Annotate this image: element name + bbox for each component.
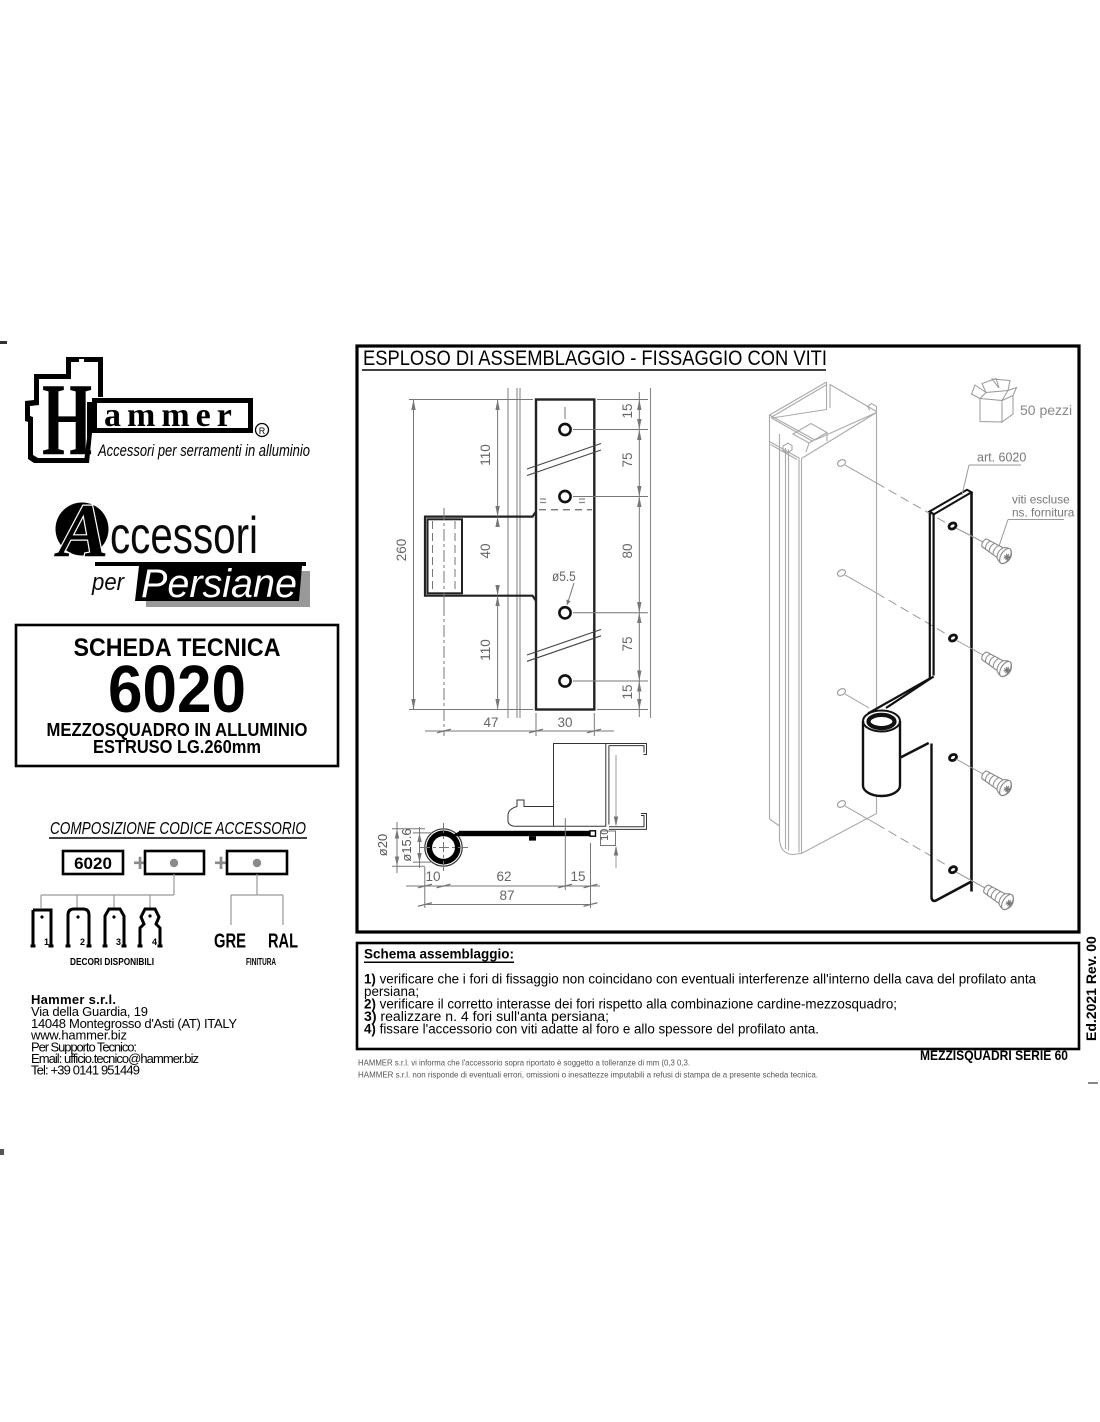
svg-text:ns. fornitura: ns. fornitura xyxy=(1012,506,1075,520)
svg-text:3: 3 xyxy=(116,937,121,947)
svg-text:40: 40 xyxy=(478,543,493,558)
svg-text:ESTRUSO LG.260mm: ESTRUSO LG.260mm xyxy=(93,737,261,757)
svg-text:R: R xyxy=(259,426,266,436)
svg-text:Ed.2021 Rev. 00: Ed.2021 Rev. 00 xyxy=(1083,936,1099,1041)
svg-text:87: 87 xyxy=(499,888,514,903)
svg-text:6020: 6020 xyxy=(74,854,112,873)
svg-text:Tel: +39 0141 951449: Tel: +39 0141 951449 xyxy=(31,1063,140,1078)
svg-text:15: 15 xyxy=(570,869,585,884)
svg-text:ø20: ø20 xyxy=(375,834,390,856)
svg-text:75: 75 xyxy=(620,636,635,651)
svg-text:50 pezzi: 50 pezzi xyxy=(1020,402,1072,418)
svg-text:15: 15 xyxy=(620,403,635,418)
svg-text:FINITURA: FINITURA xyxy=(246,957,276,968)
svg-text:RAL: RAL xyxy=(268,931,298,953)
svg-text:ccessori: ccessori xyxy=(110,507,258,565)
svg-text:GRE: GRE xyxy=(214,931,246,953)
svg-text:Accessori per serramenti in al: Accessori per serramenti in alluminio xyxy=(97,442,310,460)
svg-text:62: 62 xyxy=(496,869,511,884)
svg-text:ø15.6: ø15.6 xyxy=(399,828,414,861)
svg-text:10: 10 xyxy=(425,869,440,884)
svg-text:2: 2 xyxy=(80,937,85,947)
svg-text:15: 15 xyxy=(620,684,635,699)
svg-text:COMPOSIZIONE CODICE ACCESSORIO: COMPOSIZIONE CODICE ACCESSORIO xyxy=(50,818,306,838)
svg-text:HAMMER s.r.l. non risponde di: HAMMER s.r.l. non risponde di eventuali … xyxy=(358,1070,818,1080)
svg-text:A: A xyxy=(54,489,109,573)
svg-text:Schema assemblaggio:: Schema assemblaggio: xyxy=(364,947,514,962)
svg-text:ESPLOSO DI ASSEMBLAGGIO - FISS: ESPLOSO DI ASSEMBLAGGIO - FISSAGGIO CON … xyxy=(363,347,827,370)
svg-text:10: 10 xyxy=(599,829,611,841)
svg-text:DECORI DISPONIBILI: DECORI DISPONIBILI xyxy=(70,957,154,968)
svg-text:MEZZISQUADRI SERIE 60: MEZZISQUADRI SERIE 60 xyxy=(920,1047,1068,1063)
svg-text:47: 47 xyxy=(483,715,498,730)
svg-text:HAMMER s.r.l. vi informa che l: HAMMER s.r.l. vi informa che l'accessori… xyxy=(358,1058,690,1068)
svg-text:Persiane: Persiane xyxy=(141,562,297,606)
svg-text:ø5.5: ø5.5 xyxy=(552,568,576,584)
svg-text:1: 1 xyxy=(44,937,49,947)
svg-text:art. 6020: art. 6020 xyxy=(977,451,1026,465)
svg-text:80: 80 xyxy=(620,543,635,558)
svg-text:75: 75 xyxy=(620,452,635,467)
svg-text:110: 110 xyxy=(478,639,493,661)
svg-text:ammer: ammer xyxy=(104,397,238,434)
svg-text:110: 110 xyxy=(478,444,493,466)
svg-text:viti escluse: viti escluse xyxy=(1012,493,1070,507)
svg-text:per: per xyxy=(91,569,125,596)
svg-text:6020: 6020 xyxy=(108,652,246,727)
svg-text:H: H xyxy=(42,361,92,476)
svg-text:4: 4 xyxy=(152,937,157,947)
svg-text:1) verificare che i fori di fi: 1) verificare che i fori di fissaggio no… xyxy=(364,972,1037,987)
svg-text:4) fissare l'accessorio con vi: 4) fissare l'accessorio con viti adatte … xyxy=(364,1022,819,1037)
svg-text:30: 30 xyxy=(557,715,572,730)
svg-text:260: 260 xyxy=(394,539,409,562)
